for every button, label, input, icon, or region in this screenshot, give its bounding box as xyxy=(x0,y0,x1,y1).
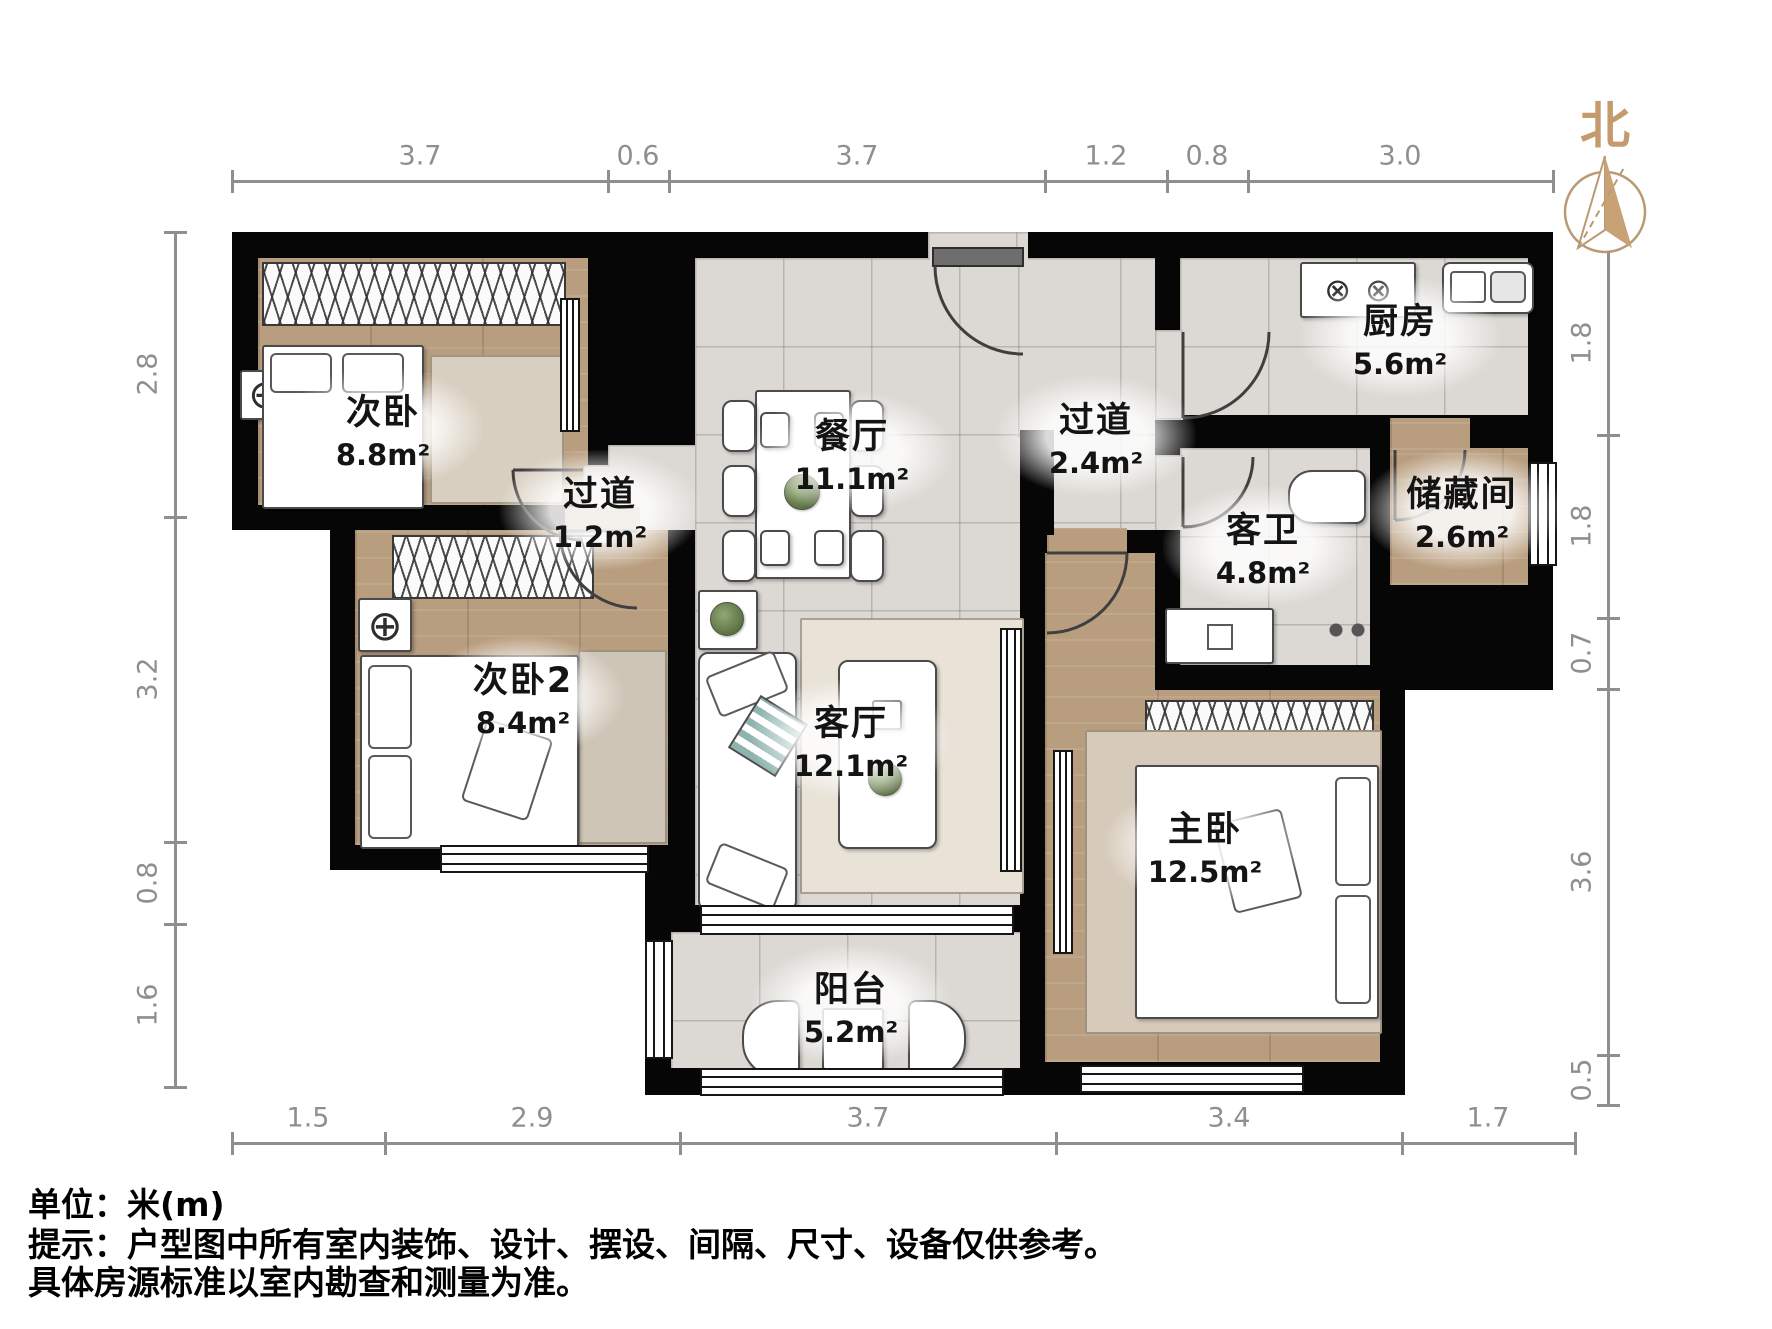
dining-chair-icon xyxy=(850,530,884,582)
dim-label: 2.8 xyxy=(133,353,164,396)
dim-label: 3.2 xyxy=(133,658,164,701)
room-area: 11.1m² xyxy=(795,462,909,496)
room-name: 阳台 xyxy=(804,961,898,1012)
dim-label: 3.7 xyxy=(836,141,879,172)
dining-chair-icon xyxy=(722,530,756,582)
dim-tick xyxy=(1574,1132,1577,1155)
dim-tick xyxy=(1597,1104,1620,1107)
dim-tick xyxy=(231,1132,234,1155)
dim-tick xyxy=(164,1086,187,1089)
dim-tick xyxy=(231,170,234,193)
tv-panel xyxy=(1000,628,1022,872)
dim-tick xyxy=(1044,170,1047,193)
room-label-guestbath: 客卫 4.8m² xyxy=(1216,502,1310,590)
plant-icon xyxy=(710,602,744,636)
wardrobe-icon xyxy=(262,262,566,326)
dim-tick xyxy=(384,1132,387,1155)
dim-label: 3.4 xyxy=(1208,1103,1251,1134)
window xyxy=(1080,1065,1304,1093)
room-area: 2.6m² xyxy=(1406,520,1517,554)
room-name: 主卧 xyxy=(1148,801,1262,852)
dim-label: 1.7 xyxy=(1467,1103,1510,1134)
tv-panel xyxy=(560,298,580,432)
dim-label: 0.7 xyxy=(1567,632,1598,675)
faucet-icon xyxy=(1328,616,1368,644)
window xyxy=(645,940,673,1059)
door-opening xyxy=(1390,418,1470,450)
pillow-icon xyxy=(1335,777,1371,886)
dim-tick xyxy=(668,170,671,193)
door-opening xyxy=(1047,528,1127,555)
room-area: 8.8m² xyxy=(336,438,430,472)
room-area: 4.8m² xyxy=(1216,556,1310,590)
dimension-line-bottom xyxy=(232,1142,1575,1145)
room-name: 次卧2 xyxy=(473,652,573,703)
dining-chair-icon xyxy=(722,465,756,517)
dim-tick xyxy=(679,1132,682,1155)
room-area: 12.5m² xyxy=(1148,855,1262,889)
pillow-icon xyxy=(368,665,412,749)
floorplan: ⊕ ⊕ ⊗ ⊗ xyxy=(0,0,1772,1329)
room-name: 客厅 xyxy=(794,695,908,746)
room-area: 5.6m² xyxy=(1353,347,1447,381)
dim-label: 0.8 xyxy=(133,862,164,905)
note-hint2: 具体房源标准以室内勘查和测量为准。 xyxy=(28,1256,589,1304)
room-label-balcony: 阳台 5.2m² xyxy=(804,961,898,1049)
dim-tick xyxy=(1401,1132,1404,1155)
room-name: 次卧 xyxy=(336,384,430,435)
dim-label: 0.8 xyxy=(1186,141,1229,172)
window xyxy=(440,845,649,873)
room-area: 8.4m² xyxy=(473,706,573,740)
dimension-line-left xyxy=(174,232,177,1087)
window xyxy=(700,1068,1004,1096)
pillow-icon xyxy=(1335,895,1371,1004)
room-name: 过道 xyxy=(1049,392,1143,443)
tv-panel xyxy=(1053,750,1073,954)
plate-icon xyxy=(814,530,844,566)
sofa-pillow-icon xyxy=(704,842,789,911)
dim-label: 0.5 xyxy=(1567,1059,1598,1102)
floor-master-entry xyxy=(1045,553,1155,693)
basin-icon xyxy=(1207,624,1233,650)
room-label-dining: 餐厅 11.1m² xyxy=(795,408,909,496)
room-label-kitchen: 厨房 5.6m² xyxy=(1353,293,1447,381)
dim-tick xyxy=(1055,1132,1058,1155)
dim-tick xyxy=(1597,1054,1620,1057)
dim-label: 1.2 xyxy=(1085,141,1128,172)
dim-label: 3.6 xyxy=(1567,851,1598,894)
dim-tick xyxy=(1166,170,1169,193)
dim-tick xyxy=(1247,170,1250,193)
dim-label: 3.7 xyxy=(399,141,442,172)
dim-label: 2.9 xyxy=(511,1103,554,1134)
vanity-icon xyxy=(1165,608,1274,664)
dim-tick xyxy=(164,231,187,234)
dim-label: 1.8 xyxy=(1567,322,1598,365)
room-name: 客卫 xyxy=(1216,502,1310,553)
sliding-door xyxy=(700,905,1014,935)
room-label-bedroom3: 次卧2 8.4m² xyxy=(473,652,573,740)
dim-tick xyxy=(1597,688,1620,691)
room-label-storage: 储藏间 2.6m² xyxy=(1406,466,1517,554)
room-area: 2.4m² xyxy=(1049,446,1143,480)
room-label-hallway2: 过道 2.4m² xyxy=(1049,392,1143,480)
room-area: 5.2m² xyxy=(804,1015,898,1049)
dim-tick xyxy=(1597,617,1620,620)
room-name: 厨房 xyxy=(1353,293,1447,344)
room-label-master: 主卧 12.5m² xyxy=(1148,801,1262,889)
north-label: 北 xyxy=(1580,86,1630,158)
room-label-bedroom2: 次卧 8.8m² xyxy=(336,384,430,472)
door-opening xyxy=(928,232,1028,260)
dim-tick xyxy=(1552,170,1555,193)
dim-label: 3.7 xyxy=(847,1103,890,1134)
room-name: 餐厅 xyxy=(795,408,909,459)
room-name: 储藏间 xyxy=(1406,466,1517,517)
dim-label: 0.6 xyxy=(617,141,660,172)
dim-tick xyxy=(607,170,610,193)
ceiling-light-icon: ⊕ xyxy=(358,598,412,652)
dimension-line-top xyxy=(232,180,1553,183)
dim-label: 1.8 xyxy=(1567,505,1598,548)
room-label-living: 客厅 12.1m² xyxy=(794,695,908,783)
plate-icon xyxy=(760,530,790,566)
dim-tick xyxy=(164,516,187,519)
dim-tick xyxy=(164,923,187,926)
dining-chair-icon xyxy=(722,400,756,452)
room-area: 1.2m² xyxy=(553,520,647,554)
dim-label: 1.5 xyxy=(287,1103,330,1134)
dim-tick xyxy=(1597,434,1620,437)
dimension-line-right xyxy=(1607,252,1610,1106)
dim-label: 3.0 xyxy=(1379,141,1422,172)
dim-label: 1.6 xyxy=(133,984,164,1027)
room-area: 12.1m² xyxy=(794,749,908,783)
room-label-hallway1: 过道 1.2m² xyxy=(553,466,647,554)
room-name: 过道 xyxy=(553,466,647,517)
ceiling-light-glyph: ⊕ xyxy=(367,601,402,650)
dim-tick xyxy=(164,841,187,844)
north-compass-icon xyxy=(1565,156,1645,252)
pillow-icon xyxy=(368,755,412,839)
